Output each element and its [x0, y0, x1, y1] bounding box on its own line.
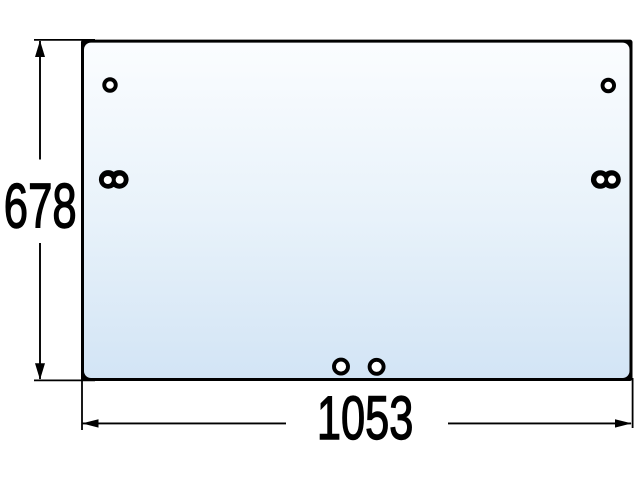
svg-text:1053: 1053 [317, 385, 414, 453]
svg-text:678: 678 [4, 172, 77, 242]
